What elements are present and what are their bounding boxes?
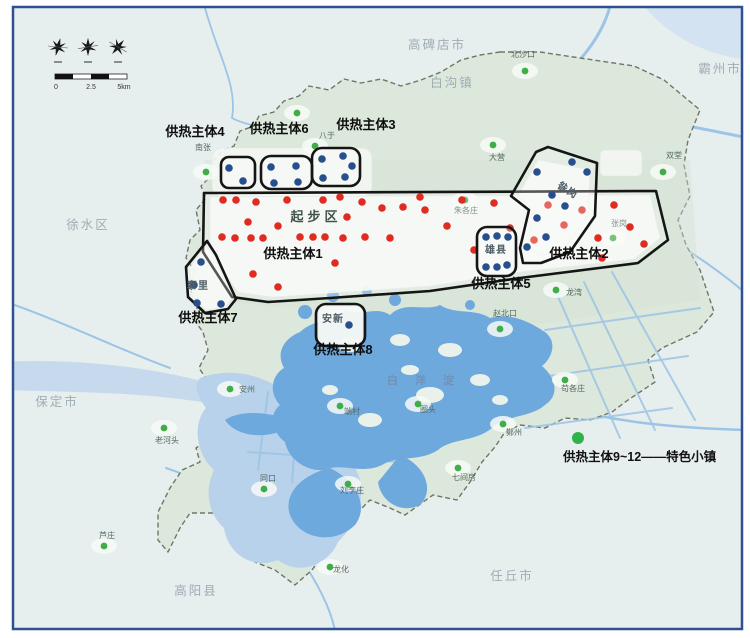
town-dot — [497, 326, 504, 333]
entity-7-plant-dot — [217, 300, 225, 308]
entity-1-label: 供热主体1 — [262, 246, 322, 261]
entity-5-plant-dot — [493, 232, 501, 240]
entity-5-plant-dot — [482, 263, 490, 271]
entity-2-plant-dot — [533, 168, 541, 176]
entity-1-plant-dot — [247, 234, 255, 242]
entity-1-plant-dot — [399, 203, 407, 211]
entity-1-plant-dot — [443, 222, 451, 230]
town-label: 苟各庄 — [561, 383, 585, 393]
legend-label: 供热主体9~12——特色小镇 — [562, 449, 717, 464]
city-label: 任丘市 — [490, 568, 534, 583]
town-dot — [660, 169, 667, 176]
entity-6-plant-dot — [294, 178, 302, 186]
town-label: 南张 — [195, 142, 211, 152]
entity-8-town-name: 安新 — [322, 312, 344, 325]
entity-5-label: 供热主体5 — [470, 276, 530, 291]
city-label: 霸州市 — [698, 61, 742, 76]
entity-5-plant-dot — [482, 233, 490, 241]
entity-1-plant-dot — [640, 240, 648, 248]
town-label: 刘李庄 — [340, 485, 364, 495]
entity-7-plant-dot — [197, 258, 205, 266]
rose-caption-mark — [114, 61, 122, 63]
entity-4-label: 供热主体4 — [164, 124, 225, 139]
entity-3-plant-dot — [341, 173, 349, 181]
entity-6-outline — [261, 156, 312, 189]
entity-1-plant-dot — [361, 233, 369, 241]
entity-1-plant-dot — [249, 270, 257, 278]
town-dot — [203, 169, 210, 176]
town-dot — [294, 110, 301, 117]
town-label: 七间房 — [452, 472, 476, 482]
entity-1-plant-dot — [274, 283, 282, 291]
entity-1-plant-dot — [321, 233, 329, 241]
town-label: 端村 — [344, 406, 360, 416]
scale-tick-0: 0 — [54, 84, 58, 91]
entity-1-plant-dot — [626, 223, 634, 231]
entity-1-plant-dot — [358, 198, 366, 206]
entity-1-plant-dot — [244, 218, 252, 226]
entity-5-plant-dot — [493, 263, 501, 271]
entity-2-plant-dot — [568, 158, 576, 166]
entity-1-plant-dot — [458, 196, 466, 204]
town-dot — [161, 425, 168, 432]
entity-8-outline — [316, 304, 365, 346]
entity-1-plant-dot — [218, 233, 226, 241]
entity-1-plant-dot — [283, 196, 291, 204]
city-label: 白沟镇 — [430, 75, 474, 90]
area-label: 白 洋 淀 — [387, 373, 461, 387]
entity-7-label: 供热主体7 — [177, 310, 237, 325]
entity-1-plant-dot — [309, 233, 317, 241]
entity-6-plant-dot — [270, 179, 278, 187]
town-dot — [101, 543, 108, 550]
entity-2-plant-dot — [523, 243, 531, 251]
town-label: 八于 — [319, 131, 335, 140]
entity-2-label: 供热主体2 — [548, 246, 608, 261]
entity-1-plant-dot — [416, 193, 424, 201]
entity-1-plant-dot — [343, 213, 351, 221]
entity-3-plant-dot — [348, 162, 356, 170]
entity-1-plant-dot — [594, 234, 602, 242]
entity-1-plant-dot — [378, 204, 386, 212]
entity-8-plant-dot — [345, 321, 353, 329]
xiongan-heating-map: 北沙口八于南张大营双堂张岗朱各庄龙湾赵北口苟各庄鄚州七间房端村圈头刘李庄同口老河… — [0, 0, 750, 638]
entity-1-plant-dot — [490, 199, 498, 207]
entity-1-plant-dot — [331, 259, 339, 267]
entity-6-plant-dot — [292, 162, 300, 170]
entity-1-plant-dot — [296, 233, 304, 241]
entity-1-plant-dot — [339, 234, 347, 242]
entity-4-plant-dot — [239, 177, 247, 185]
entity-7-town-name: 寨里 — [186, 279, 209, 292]
entity-2-plant-dot — [542, 233, 550, 241]
area-label: 起步区 — [289, 209, 341, 224]
town-label: 圈头 — [420, 404, 436, 414]
entity-5-plant-dot — [503, 261, 511, 269]
entity-2-plant-dot — [583, 168, 591, 176]
town-label: 双堂 — [666, 150, 682, 160]
town-dot — [562, 377, 569, 384]
entity-3-plant-dot — [339, 152, 347, 160]
planning-map-figure: 北沙口八于南张大营双堂张岗朱各庄龙湾赵北口苟各庄鄚州七间房端村圈头刘李庄同口老河… — [0, 0, 750, 638]
scale-tick-mid: 2.5 — [86, 84, 96, 91]
town-label: 赵北口 — [493, 308, 517, 318]
entity-1-plant-dot — [336, 193, 344, 201]
city-label: 高碑店市 — [408, 37, 466, 52]
city-label: 高阳县 — [174, 583, 218, 598]
town-label: 北沙口 — [511, 50, 535, 59]
entity-5-town-name: 雄县 — [484, 243, 507, 256]
entity-7-plant-dot — [193, 299, 201, 307]
town-dot — [522, 68, 529, 75]
entity-1-plant-dot — [231, 234, 239, 242]
entity-1-plant-dot — [259, 234, 267, 242]
town-label: 大营 — [489, 152, 505, 162]
town-label: 老河头 — [155, 435, 179, 445]
entity-1-plant-dot — [219, 196, 227, 204]
entity-1-plant-dot — [421, 206, 429, 214]
town-label: 龙湾 — [566, 287, 582, 297]
rose-caption-mark — [84, 61, 92, 63]
town-label: 安州 — [239, 384, 255, 394]
town-dot — [455, 465, 462, 472]
city-label: 徐水区 — [66, 217, 110, 232]
town-dot — [227, 386, 234, 393]
entity-6-label: 供热主体6 — [248, 121, 308, 136]
entity-8-label: 供热主体8 — [312, 342, 372, 357]
town-dot — [337, 403, 344, 410]
entity-1-plant-dot — [610, 201, 618, 209]
entity-2-plant-dot — [561, 202, 569, 210]
entity-5-plant-dot — [504, 233, 512, 241]
entity-3-label: 供热主体3 — [335, 117, 395, 132]
entity-4-plant-dot — [225, 164, 233, 172]
terrain-layer: 北沙口八于南张大营双堂张岗朱各庄龙湾赵北口苟各庄鄚州七间房端村圈头刘李庄同口老河… — [0, 0, 750, 636]
entity-1-plant-dot — [319, 196, 327, 204]
entity-3-plant-dot — [319, 174, 327, 182]
entity-2-plant-dot — [548, 191, 556, 199]
entity-1-plant-dot — [274, 222, 282, 230]
town-label: 龙化 — [333, 564, 349, 574]
town-dot — [490, 142, 497, 149]
town-label: 同口 — [260, 474, 276, 483]
town-dot — [261, 486, 268, 493]
entity-6-plant-dot — [267, 163, 275, 171]
entity-3-plant-dot — [318, 155, 326, 163]
town-dot — [553, 287, 560, 294]
town-dot — [500, 421, 507, 428]
entity-1-plant-dot — [252, 198, 260, 206]
entity-2-plant-dot — [533, 214, 541, 222]
entity-1-plant-dot — [232, 196, 240, 204]
entity-1-plant-dot — [386, 234, 394, 242]
rose-caption-mark — [54, 61, 62, 63]
town-label: 鄚州 — [506, 427, 522, 437]
town-label: 芦庄 — [99, 530, 115, 540]
city-label: 保定市 — [35, 394, 79, 409]
entity-4-outline — [221, 157, 255, 188]
legend-town-dot — [572, 432, 584, 444]
scale-tick-end: 5km — [117, 84, 130, 91]
